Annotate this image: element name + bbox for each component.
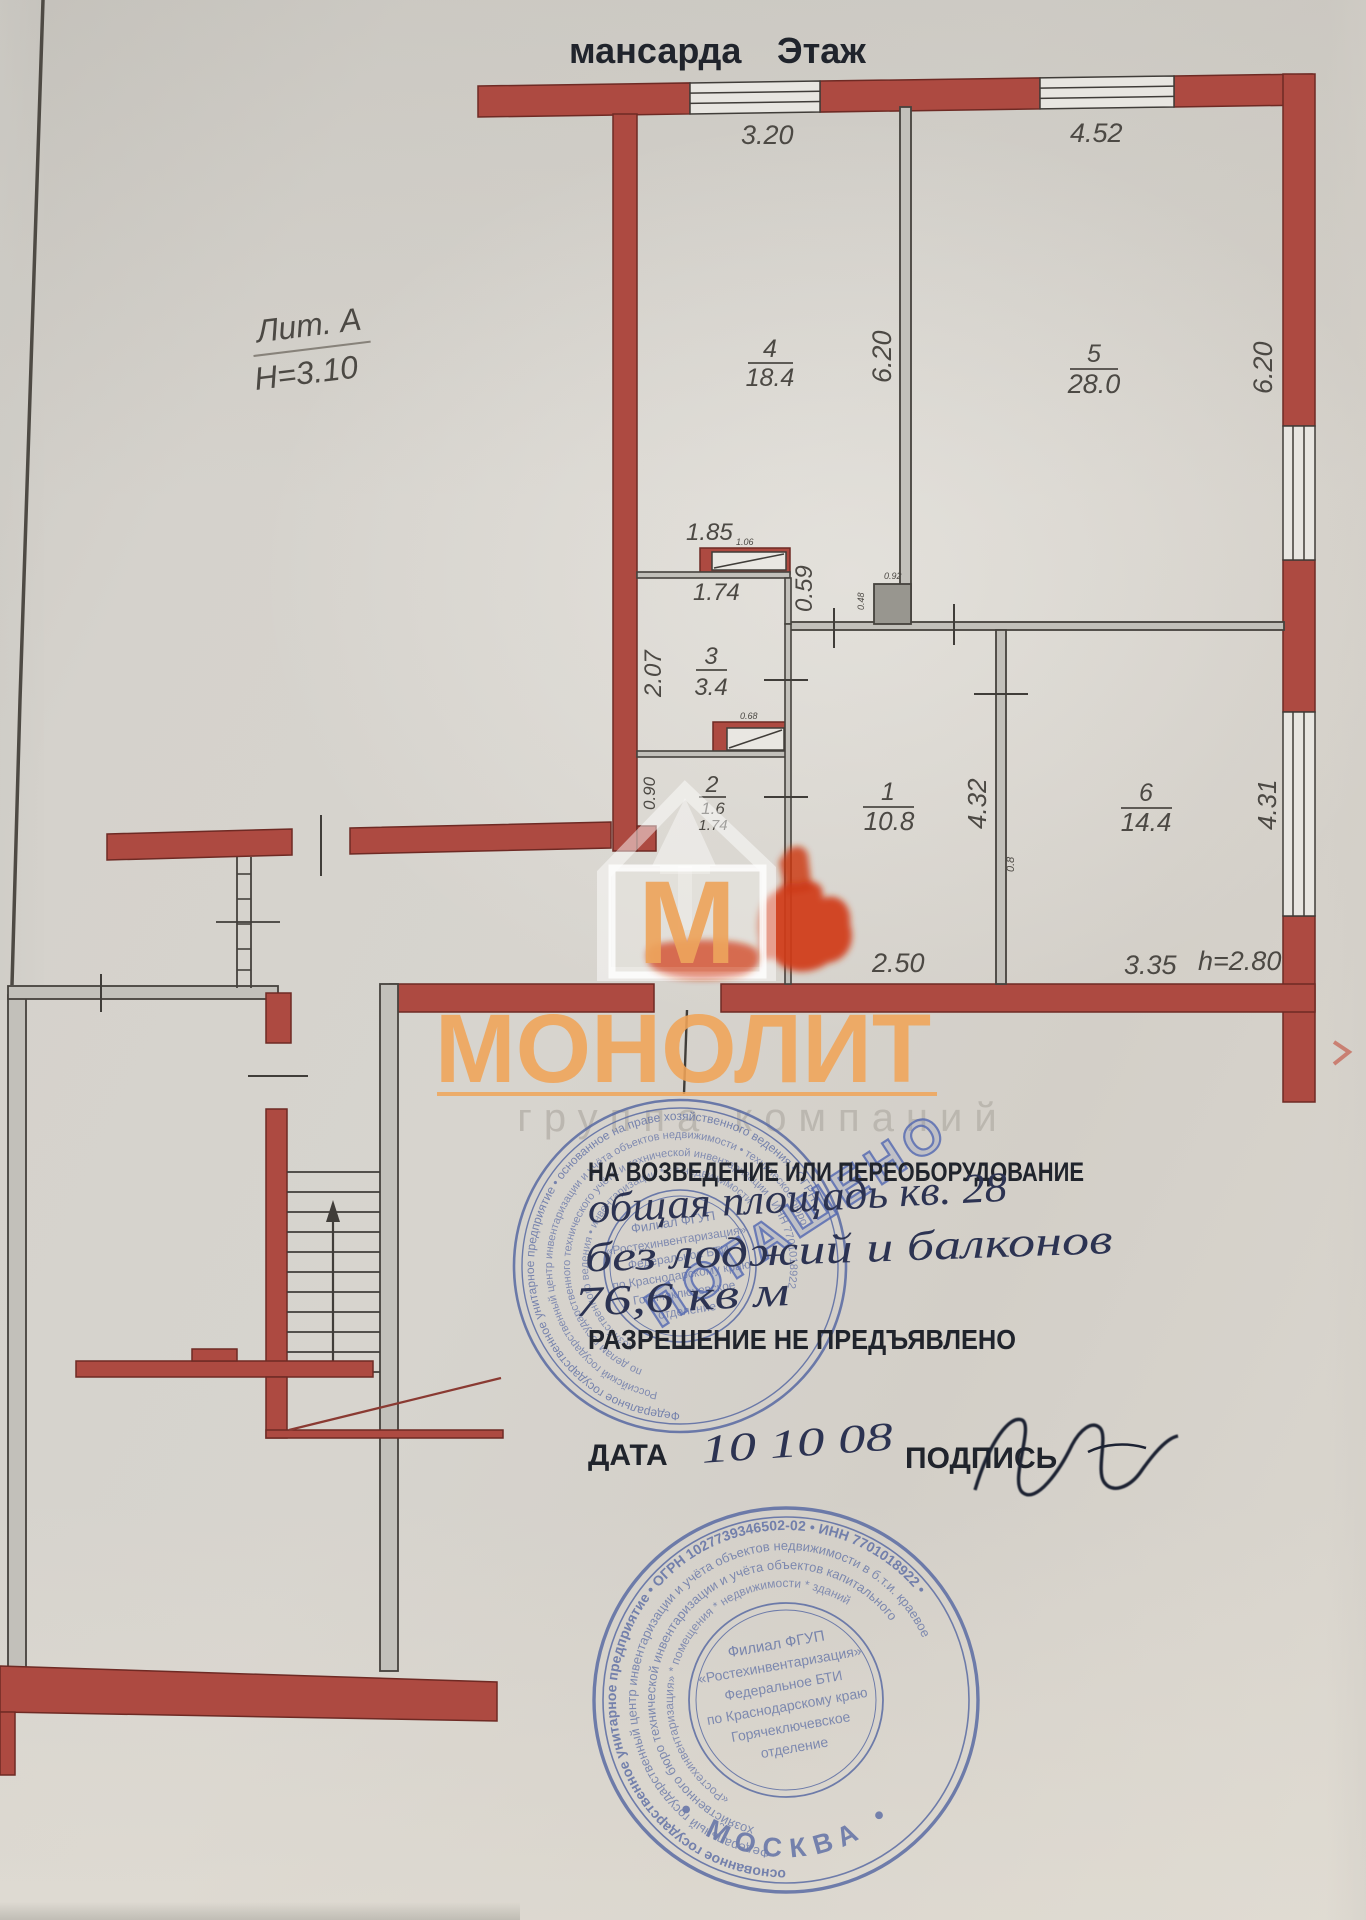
svg-text:0.48: 0.48 [856, 592, 866, 610]
svg-text:0.8: 0.8 [1005, 856, 1017, 872]
svg-text:0.59: 0.59 [791, 565, 818, 612]
svg-text:6: 6 [1139, 779, 1153, 807]
svg-text:14.4: 14.4 [1121, 807, 1172, 837]
svg-text:10 10 08: 10 10 08 [700, 1414, 895, 1472]
svg-text:76,6 кв м: 76,6 кв м [573, 1269, 790, 1326]
svg-text:4: 4 [763, 335, 777, 363]
svg-text:3.4: 3.4 [694, 674, 727, 701]
svg-text:мансарда: мансарда [569, 30, 742, 71]
svg-text:0.90: 0.90 [640, 776, 659, 810]
svg-text:Лит. А: Лит. А [252, 301, 363, 350]
svg-text:1.85: 1.85 [686, 519, 733, 546]
svg-text:2.50: 2.50 [871, 948, 925, 978]
svg-text:3.20: 3.20 [741, 120, 794, 150]
svg-text:3.35: 3.35 [1124, 950, 1178, 980]
svg-text:2.07: 2.07 [640, 649, 667, 698]
svg-text:Этаж: Этаж [777, 30, 866, 71]
svg-text:10.8: 10.8 [864, 806, 915, 836]
svg-text:4.31: 4.31 [1252, 779, 1282, 830]
svg-text:РАЗРЕШЕНИЕ НЕ ПРЕДЪЯВЛЕНО: РАЗРЕШЕНИЕ НЕ ПРЕДЪЯВЛЕНО [588, 1324, 1016, 1355]
svg-text:2: 2 [705, 771, 719, 797]
svg-text:6.20: 6.20 [867, 330, 897, 383]
svg-text:0.92: 0.92 [884, 571, 902, 581]
svg-text:5: 5 [1087, 340, 1101, 368]
svg-text:ДАТА: ДАТА [588, 1439, 668, 1472]
svg-text:h=2.80: h=2.80 [1198, 946, 1281, 976]
svg-text:3: 3 [704, 643, 718, 670]
svg-text:1: 1 [881, 778, 895, 806]
svg-text:28.0: 28.0 [1067, 369, 1121, 399]
svg-text:1.74: 1.74 [693, 579, 740, 606]
svg-text:6.20: 6.20 [1248, 341, 1278, 394]
svg-text:1.06: 1.06 [736, 537, 754, 547]
svg-text:М: М [638, 857, 736, 989]
svg-text:4.52: 4.52 [1070, 118, 1123, 148]
svg-text:H=3.10: H=3.10 [252, 348, 360, 396]
svg-text:18.4: 18.4 [746, 364, 795, 392]
svg-text:МОНОЛИТ: МОНОЛИТ [435, 994, 931, 1103]
svg-text:4.32: 4.32 [962, 778, 992, 829]
svg-text:0.68: 0.68 [740, 711, 758, 721]
